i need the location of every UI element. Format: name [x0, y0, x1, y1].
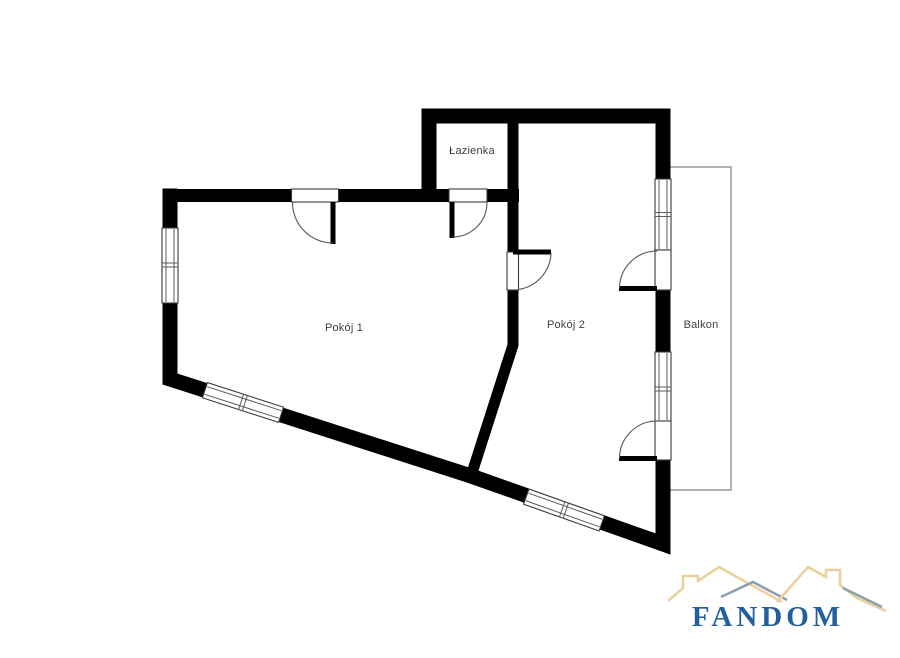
label-room2: Pokój 2	[516, 319, 616, 331]
roofline-middle-slate-icon	[721, 582, 787, 600]
label-room1: Pokój 1	[294, 322, 394, 334]
door-balcony-upper	[619, 250, 671, 291]
door-room2	[507, 250, 551, 291]
window-right-upper	[655, 179, 671, 250]
logo-wordmark: FANDOM	[660, 601, 876, 634]
door-balcony-lower	[619, 421, 671, 461]
floorplan-page: Łazienka Pokój 1 Pokój 2 Balkon FANDOM	[0, 0, 900, 658]
window-left	[162, 228, 178, 303]
wall-room-divider	[472, 123, 514, 475]
window-right-lower	[655, 352, 671, 421]
label-bathroom: Łazienka	[432, 145, 512, 157]
fandom-logo: FANDOM	[660, 560, 895, 655]
window-bottom-right	[524, 489, 605, 531]
roofline-left-tan-icon	[668, 567, 782, 602]
door-bathroom	[449, 189, 487, 238]
window-bottom-left	[202, 383, 283, 423]
door-entry	[292, 189, 339, 244]
label-balcony: Balkon	[671, 319, 731, 331]
